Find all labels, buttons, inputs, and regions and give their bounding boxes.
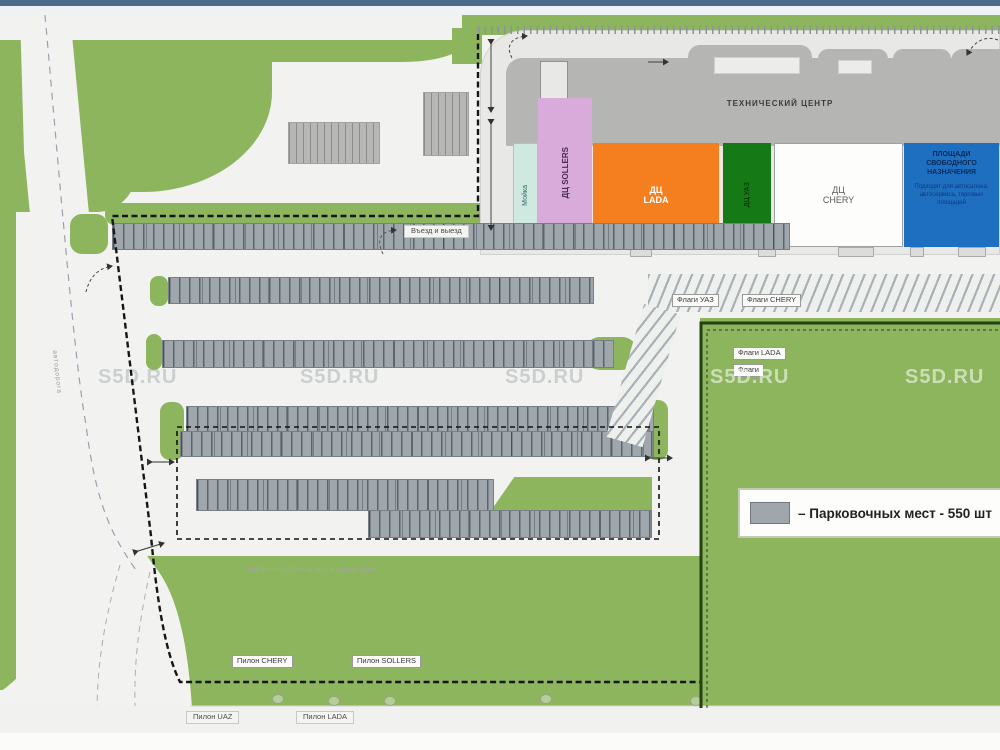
curve-arrow-entrance [86, 266, 112, 292]
dashed-selection-rect [177, 427, 659, 539]
curve-arrow-entry-label [380, 230, 396, 254]
site-boundary [112, 34, 701, 682]
right-green-border [701, 323, 1000, 708]
right-green-border-dashed [707, 330, 1000, 708]
curve-arrow-plot-topleft [509, 36, 527, 58]
site-plan: ТЕХНИЧЕСКИЙ ЦЕНТР Мойка ДЦ SOLLERS ДЦ LA… [0, 0, 1000, 750]
curve-arrow-plot-topright [967, 38, 998, 55]
plan-annotations [0, 0, 1000, 750]
